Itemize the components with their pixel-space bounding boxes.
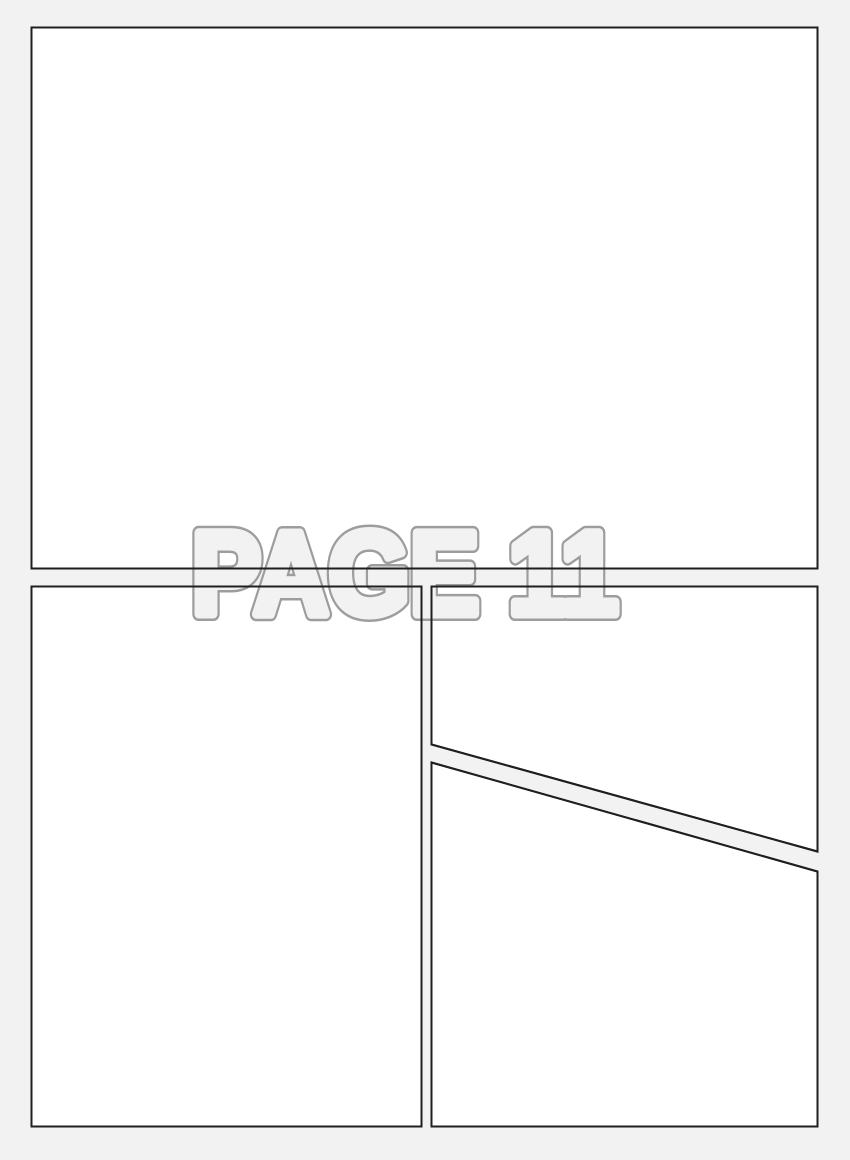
- page-label-group: PAGE 11 PAGE 11: [192, 508, 619, 640]
- page-label: PAGE 11: [192, 508, 619, 640]
- comic-page-template: PAGE 11 PAGE 11: [0, 0, 850, 1160]
- panel-top-full-width: [32, 28, 818, 569]
- comic-page-canvas: PAGE 11 PAGE 11: [0, 0, 850, 1160]
- panel-bottom-left: [32, 587, 422, 1127]
